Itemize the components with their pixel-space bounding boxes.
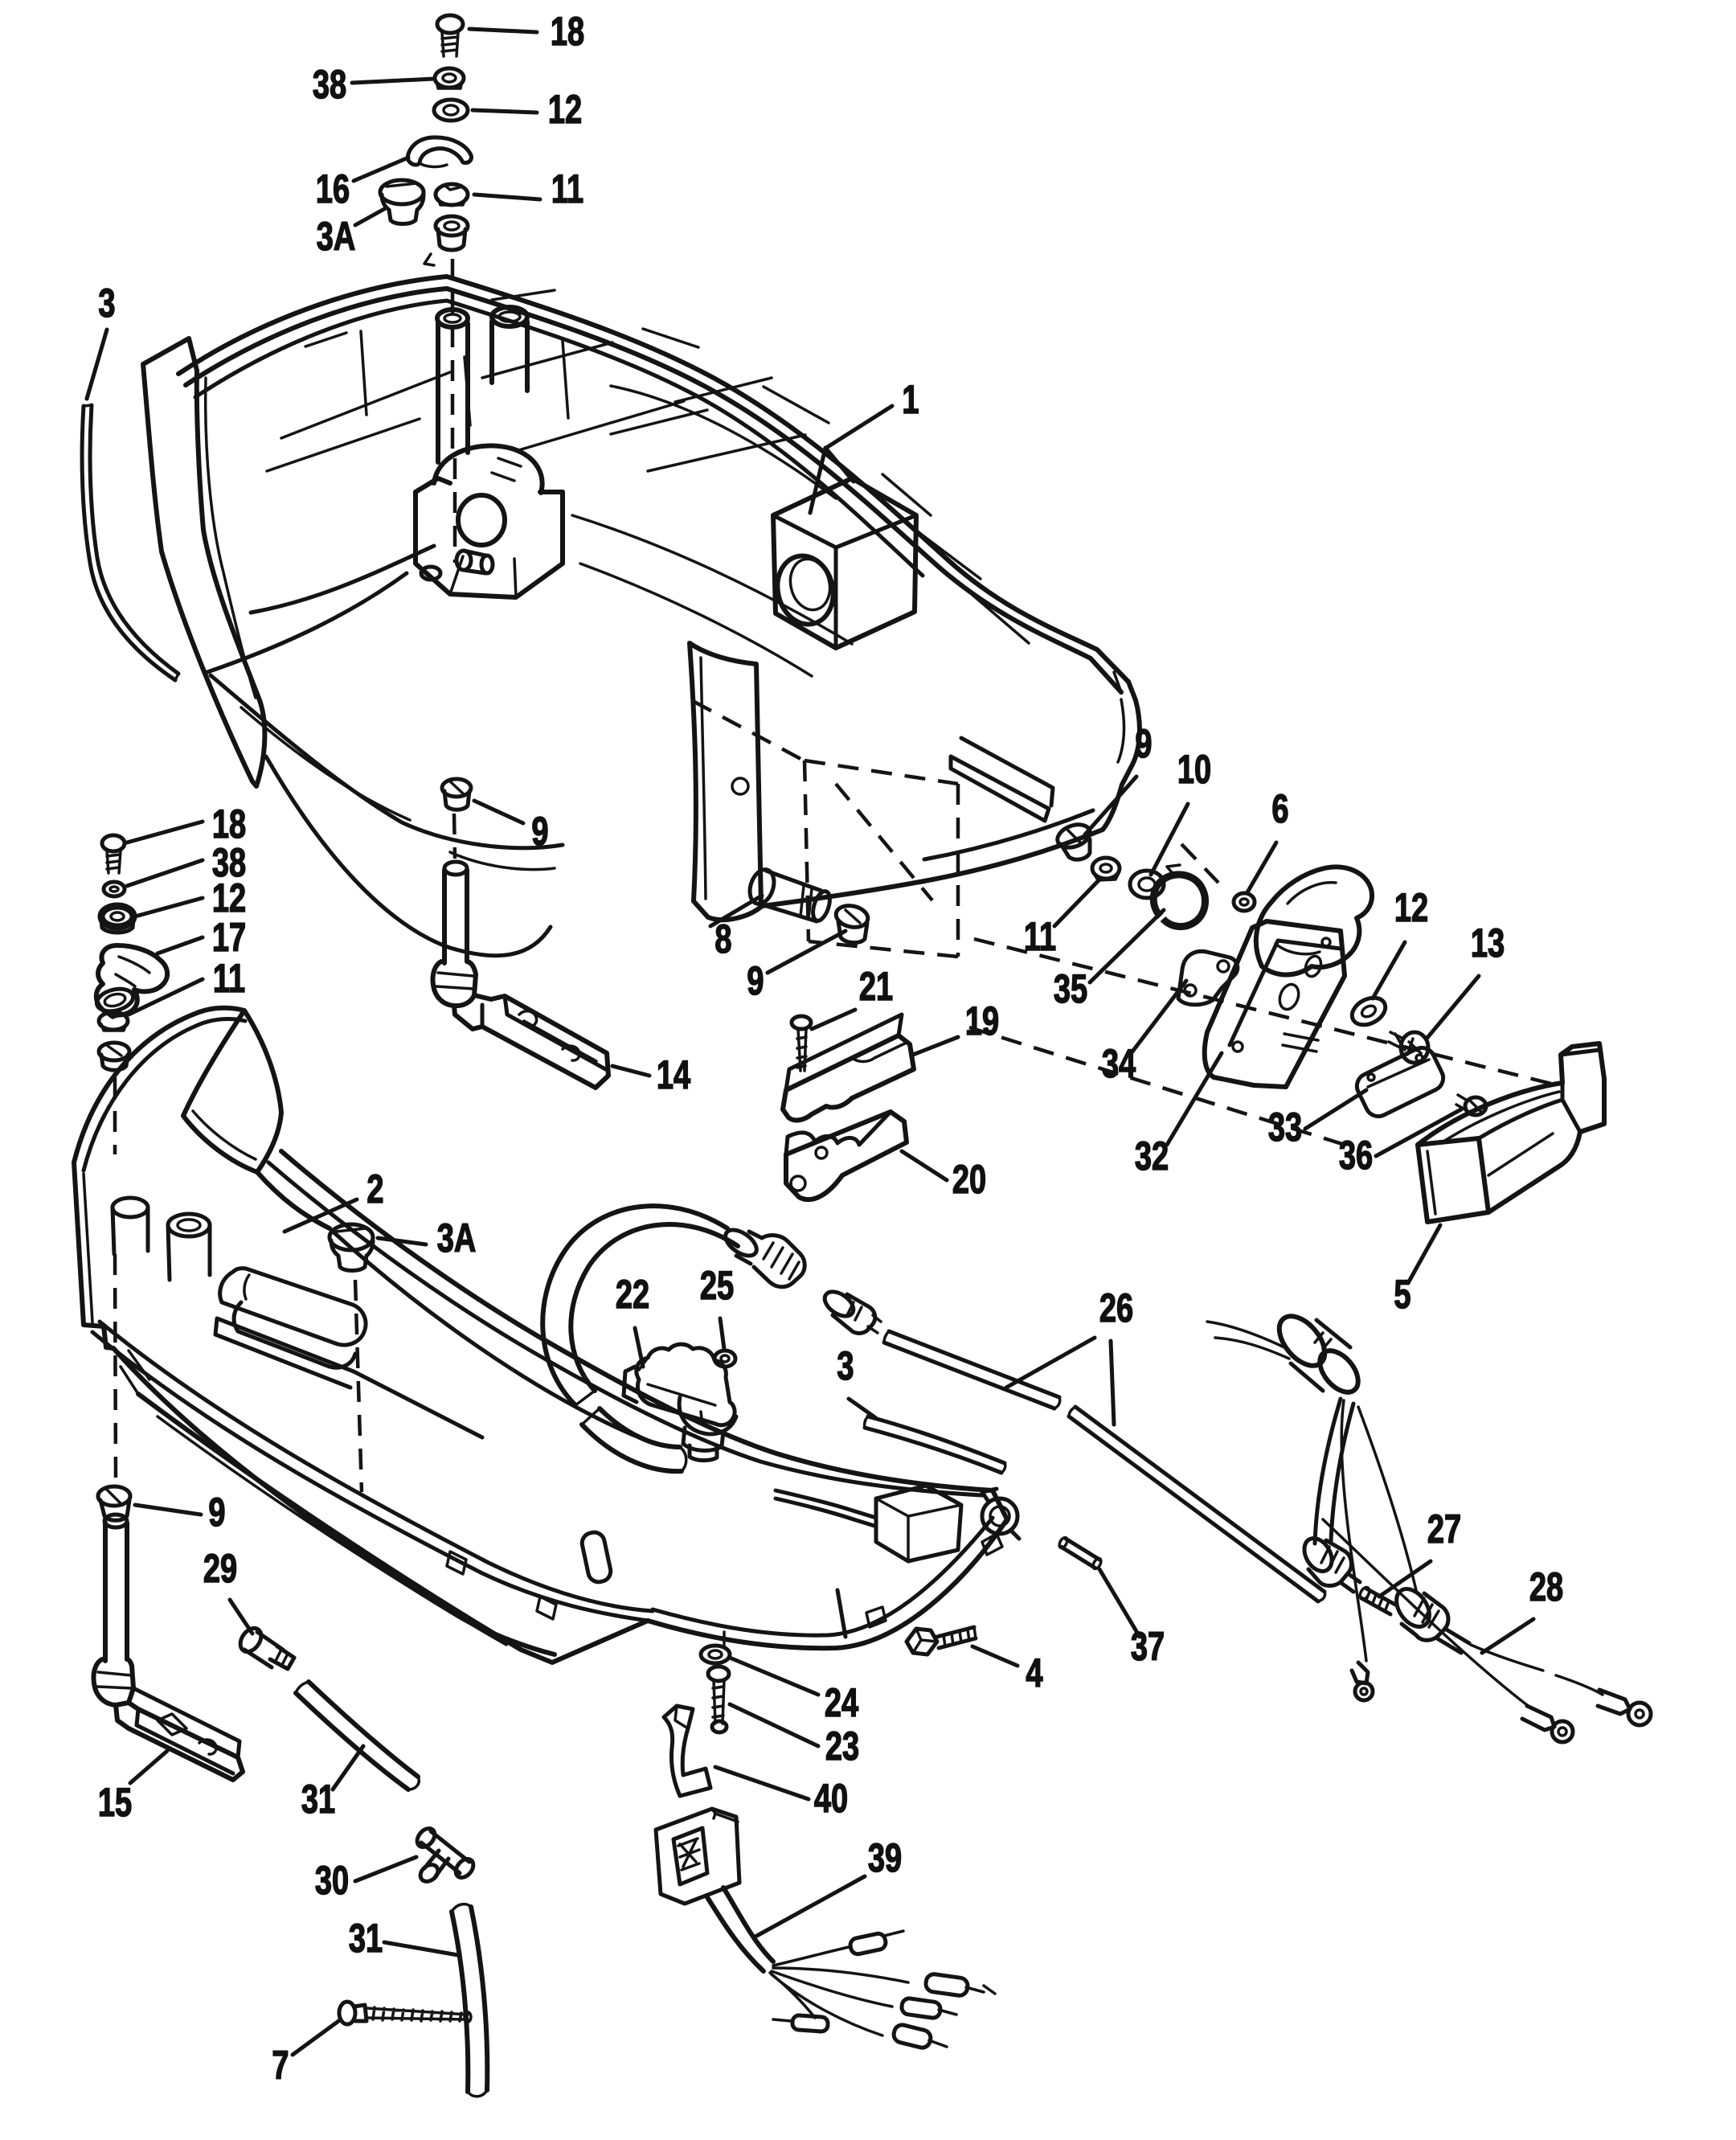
svg-text:28: 28 — [1529, 1565, 1563, 1609]
svg-text:20: 20 — [952, 1158, 986, 1202]
svg-text:12: 12 — [1394, 886, 1428, 930]
svg-text:4: 4 — [1026, 1651, 1042, 1695]
svg-text:36: 36 — [1339, 1134, 1373, 1178]
svg-text:12: 12 — [548, 88, 582, 132]
svg-text:40: 40 — [814, 1777, 848, 1821]
svg-text:23: 23 — [825, 1724, 859, 1769]
svg-text:3: 3 — [837, 1344, 854, 1388]
svg-text:19: 19 — [965, 999, 999, 1043]
svg-text:21: 21 — [859, 965, 893, 1009]
svg-text:9: 9 — [531, 810, 548, 854]
svg-text:1: 1 — [902, 378, 919, 422]
svg-text:7: 7 — [272, 2044, 289, 2088]
svg-text:39: 39 — [868, 1836, 902, 1880]
svg-text:18: 18 — [212, 802, 246, 847]
svg-text:17: 17 — [212, 916, 246, 960]
svg-text:31: 31 — [349, 1917, 383, 1961]
svg-text:11: 11 — [213, 957, 245, 1001]
svg-text:30: 30 — [315, 1859, 349, 1903]
svg-text:13: 13 — [1471, 921, 1505, 965]
svg-text:3: 3 — [98, 281, 115, 326]
svg-text:27: 27 — [1427, 1507, 1461, 1552]
svg-text:9: 9 — [747, 959, 764, 1003]
svg-text:9: 9 — [1135, 722, 1152, 766]
svg-text:38: 38 — [313, 63, 346, 107]
svg-text:6: 6 — [1271, 787, 1288, 831]
svg-text:31: 31 — [301, 1777, 335, 1822]
svg-text:33: 33 — [1268, 1105, 1302, 1150]
svg-text:22: 22 — [616, 1273, 649, 1317]
svg-text:26: 26 — [1099, 1286, 1133, 1330]
svg-text:15: 15 — [98, 1781, 132, 1825]
svg-text:9: 9 — [208, 1490, 225, 1535]
svg-text:3A: 3A — [317, 215, 356, 259]
svg-text:29: 29 — [203, 1547, 237, 1591]
svg-text:25: 25 — [700, 1264, 734, 1308]
svg-text:2: 2 — [366, 1167, 383, 1211]
svg-text:24: 24 — [825, 1681, 859, 1725]
svg-text:12: 12 — [212, 876, 246, 920]
svg-text:10: 10 — [1177, 748, 1211, 792]
svg-text:32: 32 — [1135, 1134, 1169, 1179]
svg-text:35: 35 — [1054, 967, 1087, 1011]
svg-text:11: 11 — [1024, 915, 1056, 959]
svg-text:11: 11 — [551, 167, 583, 211]
svg-text:3A: 3A — [437, 1216, 477, 1261]
svg-text:14: 14 — [657, 1053, 691, 1097]
svg-text:16: 16 — [316, 167, 350, 211]
svg-text:18: 18 — [551, 10, 584, 54]
